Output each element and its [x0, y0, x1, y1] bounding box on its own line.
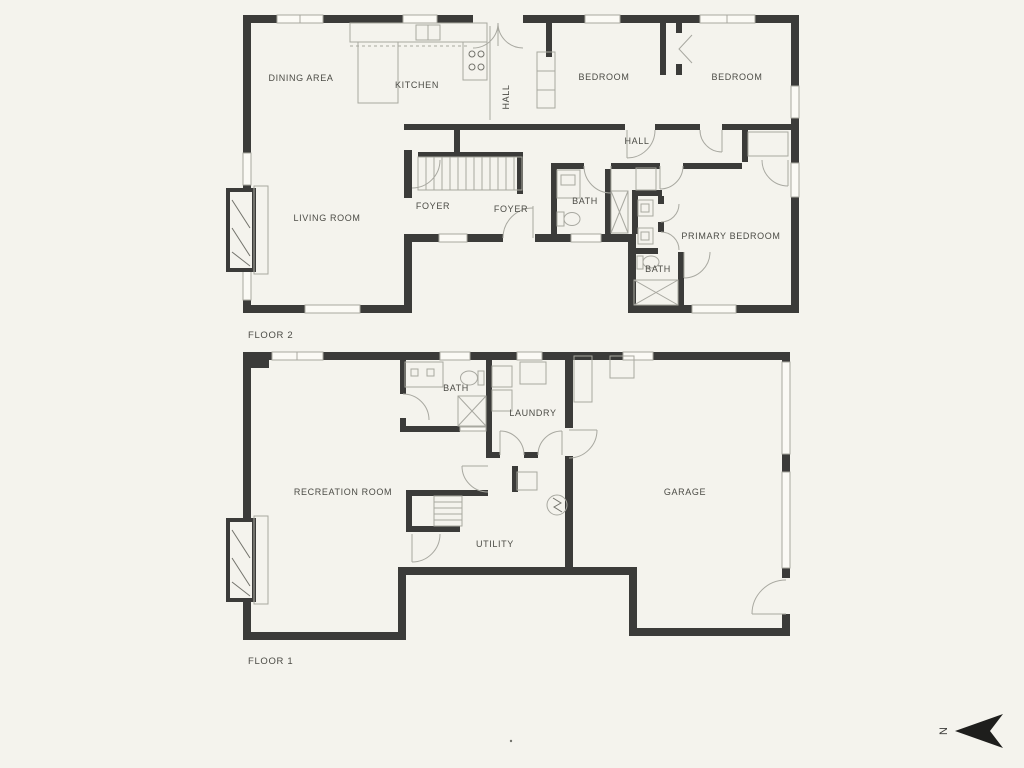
room-label-hall-upper: HALL [501, 84, 511, 109]
room-label-bedroom-right: BEDROOM [712, 72, 763, 82]
floor2-plan: DINING AREA KITCHEN HALL BEDROOM BEDROOM… [228, 15, 799, 341]
page-mark [510, 740, 512, 742]
north-arrow-icon [955, 714, 1003, 748]
toilet [478, 371, 484, 385]
toilet [637, 256, 643, 269]
room-label-laundry: LAUNDRY [509, 408, 556, 418]
room-label-living-room: LIVING ROOM [294, 213, 361, 223]
fireplace [228, 520, 254, 600]
garage-door [782, 362, 790, 454]
floor1-fixtures [228, 356, 634, 604]
utility-appliance [574, 356, 592, 402]
room-label-kitchen: KITCHEN [395, 80, 439, 90]
room-label-dining-area: DINING AREA [269, 73, 334, 83]
vanity-sink [638, 228, 653, 244]
floor2-title: FLOOR 2 [248, 330, 293, 341]
room-label-bath-upper: BATH [572, 196, 598, 206]
room-label-utility: UTILITY [476, 539, 514, 549]
kitchen-counter [350, 23, 487, 42]
room-label-bath-lower: BATH [645, 264, 671, 274]
fireplace [228, 190, 254, 270]
hearth [254, 516, 268, 604]
room-label-garage: GARAGE [664, 487, 706, 497]
room-label-hall: HALL [624, 136, 649, 146]
bifold-closet-door [679, 35, 692, 63]
room-label-foyer-left: FOYER [416, 201, 450, 211]
laundry-cabinet [520, 362, 546, 384]
garage-door [782, 472, 790, 568]
utility-appliance [517, 472, 537, 490]
floor1-plan: BATH LAUNDRY RECREATION ROOM GARAGE UTIL… [228, 352, 790, 667]
vanity-sink [638, 200, 653, 216]
compass-north-label: N [938, 727, 950, 735]
floor1-title: FLOOR 1 [248, 656, 293, 667]
primary-closet [748, 132, 788, 156]
compass-north-arrow: N [938, 714, 1003, 748]
bath-vanity [557, 170, 580, 198]
room-label-recreation-room: RECREATION ROOM [294, 487, 392, 497]
garage-entry-door [752, 580, 786, 614]
staircase-down [434, 496, 462, 526]
toilet [557, 212, 564, 226]
linen-closet [636, 168, 656, 190]
room-label-bedroom-left: BEDROOM [579, 72, 630, 82]
washer [492, 366, 512, 387]
shower-glass [460, 427, 486, 431]
floor-plan: DINING AREA KITCHEN HALL BEDROOM BEDROOM… [0, 0, 1024, 768]
room-label-bath: BATH [443, 383, 469, 393]
room-label-foyer-right: FOYER [494, 204, 528, 214]
floor-plan-canvas: DINING AREA KITCHEN HALL BEDROOM BEDROOM… [0, 0, 1024, 768]
room-label-primary-bedroom: PRIMARY BEDROOM [681, 231, 780, 241]
hearth [254, 186, 268, 274]
